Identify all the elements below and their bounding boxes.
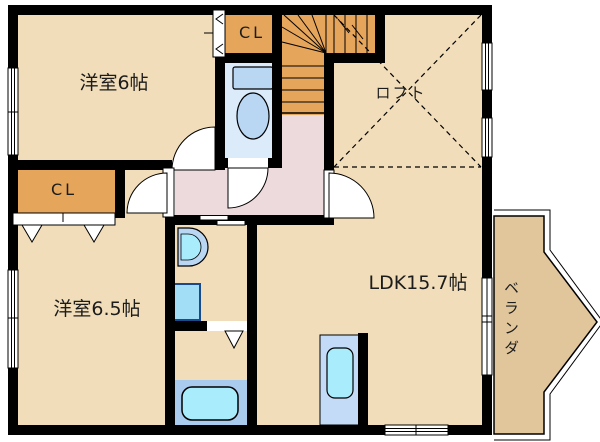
bedroom-top-label: 洋室6帖 xyxy=(13,74,215,93)
wall-bedroomtop-toilet xyxy=(215,57,225,170)
closet-side-label: CL xyxy=(13,182,115,198)
toilet-tank xyxy=(233,67,273,89)
veranda-label: ベランダ xyxy=(503,280,518,420)
stairs-down-run xyxy=(277,53,324,115)
window xyxy=(482,43,492,90)
window xyxy=(8,270,18,368)
wall-washroom-bath xyxy=(175,321,207,331)
stairs-top-run xyxy=(277,10,380,58)
kitchen-sink xyxy=(327,348,353,398)
wall-washroom-ldk xyxy=(247,215,257,435)
stair-landing-floor xyxy=(280,113,324,168)
wall-closetside-right xyxy=(115,163,125,218)
window xyxy=(385,425,448,435)
wall-bedroomtop-bottom xyxy=(13,160,175,170)
toilet-bowl xyxy=(237,93,269,139)
bedroom-bottom-label: 洋室6.5帖 xyxy=(13,300,181,319)
wall-loft-left xyxy=(324,53,334,173)
wall-outer-top xyxy=(8,5,492,15)
loft-label: ロフト xyxy=(334,86,468,101)
closet-top-label: CL xyxy=(222,25,282,41)
wall-kitchen-stub xyxy=(358,333,368,425)
wall-bedroombottom-washroom xyxy=(165,217,175,425)
floor-plan: 洋室6帖 CL ロフト CL 洋室6.5帖 LDK15.7帖 ベランダ xyxy=(0,0,600,442)
window xyxy=(482,118,492,157)
ldk-label: LDK15.7帖 xyxy=(334,274,502,293)
bedroom-bottom-floor xyxy=(13,218,165,430)
bathtub xyxy=(182,387,238,420)
